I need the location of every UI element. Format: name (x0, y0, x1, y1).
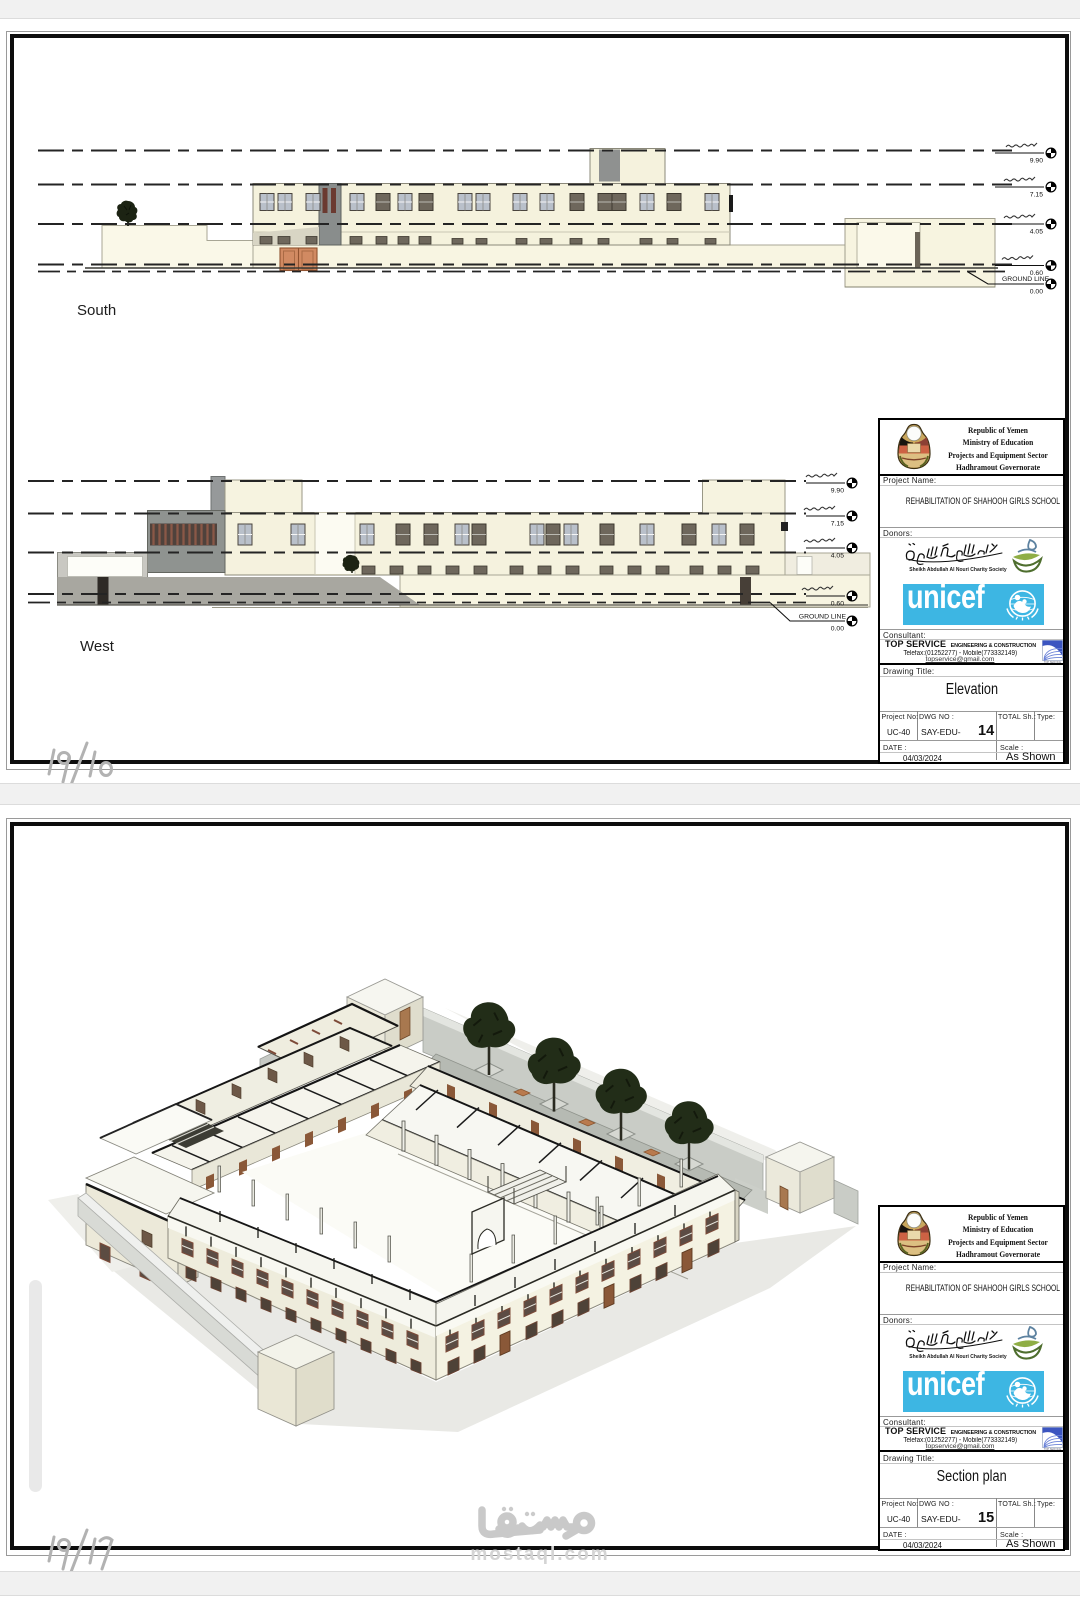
svg-text:9.90: 9.90 (1030, 158, 1043, 165)
svg-text:GROUND LINE: GROUND LINE (1002, 276, 1050, 283)
svg-text:7.15: 7.15 (831, 521, 844, 528)
svg-text:7.15: 7.15 (1030, 192, 1043, 199)
svg-text:0.00: 0.00 (831, 626, 844, 633)
svg-text:mostaql.com: mostaql.com (470, 1544, 609, 1565)
svg-text:0.00: 0.00 (1030, 289, 1043, 296)
svg-text:GROUND LINE: GROUND LINE (799, 614, 847, 621)
svg-text:4.05: 4.05 (831, 553, 844, 560)
svg-text:Sheikh Abdullah Al Nouri Chari: Sheikh Abdullah Al Nouri Charity Society (909, 567, 1007, 573)
svg-text:4.05: 4.05 (1030, 229, 1043, 236)
svg-text:0.60: 0.60 (831, 601, 844, 608)
svg-text:9.90: 9.90 (831, 488, 844, 495)
svg-text:Sheikh Abdullah Al Nouri Chari: Sheikh Abdullah Al Nouri Charity Society (909, 1354, 1007, 1360)
